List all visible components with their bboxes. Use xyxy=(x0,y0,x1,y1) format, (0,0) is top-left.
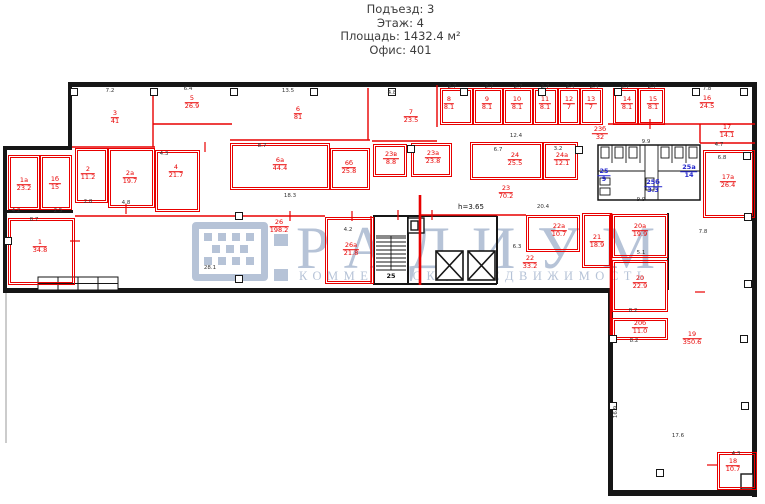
dimension-label: 4.3 xyxy=(160,151,169,157)
dimension-label: 4.8 xyxy=(122,200,131,206)
room-8-label: 88.1 xyxy=(444,96,454,112)
stair-label: 25 xyxy=(386,272,395,280)
room-24а-label: 24а12.1 xyxy=(554,152,570,168)
dimension-label: 7.8 xyxy=(699,229,708,235)
room-4-outline xyxy=(155,150,200,212)
room-5-label: 526.9 xyxy=(185,95,199,111)
column-marker xyxy=(230,88,238,96)
room-1-label: 134.8 xyxy=(33,239,47,255)
column-marker xyxy=(740,88,748,96)
dimension-label: 2.4 xyxy=(590,84,599,90)
column-marker xyxy=(407,145,415,153)
note-label: h=3.65 xyxy=(458,203,484,211)
dimension-label: 5.1 xyxy=(637,250,646,256)
room-20-label: 2022.9 xyxy=(633,275,647,291)
room-1б-label: 1б15 xyxy=(49,176,61,192)
room-20б-label: 20б11.0 xyxy=(632,320,648,336)
room-18-label: 1810.7 xyxy=(726,458,740,474)
room-21-label: 2118.9 xyxy=(590,234,604,250)
column-marker xyxy=(150,88,158,96)
room-9-label: 98.1 xyxy=(482,96,492,112)
dimension-label: 16.9 xyxy=(613,406,619,418)
dimension-label: 7.2 xyxy=(106,88,115,94)
dimension-label: 2.7 xyxy=(541,84,550,90)
dimension-label: 13.5 xyxy=(282,88,294,94)
dimension-label: 6.4 xyxy=(184,86,193,92)
dimension-label: 2.7 xyxy=(485,84,494,90)
dimension-label: 4.3 xyxy=(732,451,741,457)
room-3-label: 341 xyxy=(111,110,119,126)
room-15-label: 158.1 xyxy=(647,96,659,112)
dimension-label: 7.8 xyxy=(703,86,712,92)
column-marker xyxy=(460,88,468,96)
floor-plan-page: Подъезд: 3 Этаж: 4 Площадь: 1432.4 м² Оф… xyxy=(0,0,765,504)
dimension-label: 8.2 xyxy=(630,338,639,344)
room-10-label: 108.1 xyxy=(511,96,523,112)
dimension-label: 4.2 xyxy=(344,227,353,233)
dimension-label: 4.2 xyxy=(12,208,21,214)
column-marker xyxy=(4,237,12,245)
rooms-layer: 134.81а23.21б15211.22а19.7341421.7526.96… xyxy=(0,0,765,504)
dimension-label: 8.2 xyxy=(629,308,638,314)
dimension-label: 9.9 xyxy=(637,197,646,203)
room-23а-label: 23а23.8 xyxy=(425,150,441,166)
room-6а-label: 6а44.4 xyxy=(273,157,287,173)
room-20а-label: 20а19.9 xyxy=(632,223,648,239)
dimension-label: 6.3 xyxy=(513,244,522,250)
room-26а-label: 26а21.8 xyxy=(343,242,359,258)
room-13-label: 137 xyxy=(585,96,597,112)
column-marker xyxy=(235,212,243,220)
column-marker xyxy=(575,146,583,154)
room-22а-label: 22а10.7 xyxy=(551,223,567,239)
dimension-label: 2.7 xyxy=(514,84,523,90)
dimension-label: 8.7 xyxy=(30,217,39,223)
room-6б-label: 6б25.8 xyxy=(342,160,356,176)
dimension-label: 3.2 xyxy=(554,146,563,152)
dimension-label: 2.8 xyxy=(84,199,93,205)
column-marker xyxy=(741,402,749,410)
room-2-label: 211.2 xyxy=(81,166,95,182)
column-marker xyxy=(609,335,617,343)
dimension-label: 18.3 xyxy=(284,193,296,199)
column-marker xyxy=(70,88,78,96)
room-25а-label: 25а14 xyxy=(680,164,697,180)
room-14-label: 148.1 xyxy=(621,96,633,112)
dimension-label: 6.8 xyxy=(718,155,727,161)
column-marker xyxy=(744,280,752,288)
dimension-label: 8.7 xyxy=(258,143,267,149)
column-marker xyxy=(744,213,752,221)
room-11-label: 118.1 xyxy=(539,96,551,112)
room-25б-label: 25б3.3 xyxy=(644,179,662,195)
room-19-label: 19350.6 xyxy=(683,331,702,347)
dimension-label: 2.4 xyxy=(566,84,575,90)
dimension-label: 4.7 xyxy=(715,142,724,148)
room-7-label: 723.5 xyxy=(404,109,418,125)
room-26-label: 26198.2 xyxy=(270,219,289,235)
room-17-label: 1714.1 xyxy=(720,124,734,140)
room-25-label: 259 xyxy=(597,168,610,184)
dimension-label: 28.1 xyxy=(204,265,216,271)
room-24-outline xyxy=(470,142,543,180)
dimension-label: 9.9 xyxy=(642,139,651,145)
dimension-label: 20.4 xyxy=(537,204,549,210)
dimension-label: 2.7 xyxy=(448,84,457,90)
dimension-label: 6.7 xyxy=(494,147,503,153)
dimension-label: 4.8 xyxy=(388,90,397,96)
room-17а-label: 17а26.4 xyxy=(720,174,736,190)
room-6-label: 681 xyxy=(294,106,302,122)
room-23-label: 2370.2 xyxy=(499,185,513,201)
dimension-label: 12.4 xyxy=(510,133,522,139)
room-23в-label: 23в8.8 xyxy=(383,151,399,167)
room-16-label: 1624.5 xyxy=(700,95,714,111)
room-2а-label: 2а19.7 xyxy=(123,170,137,186)
column-marker xyxy=(656,469,664,477)
column-marker xyxy=(740,335,748,343)
room-1а-label: 1а23.2 xyxy=(17,177,31,193)
dimension-label: 17.6 xyxy=(672,433,684,439)
room-12-label: 127 xyxy=(563,96,575,112)
column-marker xyxy=(743,152,751,160)
dimension-label: 2.7 xyxy=(648,84,657,90)
room-4-label: 421.7 xyxy=(169,164,183,180)
room-22-label: 2233.2 xyxy=(523,255,537,271)
column-marker xyxy=(235,275,243,283)
room-24-label: 2425.5 xyxy=(508,152,522,168)
column-marker xyxy=(310,88,318,96)
dimension-label: 2.5 xyxy=(54,208,63,214)
room-23б-label: 23б32 xyxy=(592,126,608,142)
dimension-label: 2.7 xyxy=(621,84,630,90)
